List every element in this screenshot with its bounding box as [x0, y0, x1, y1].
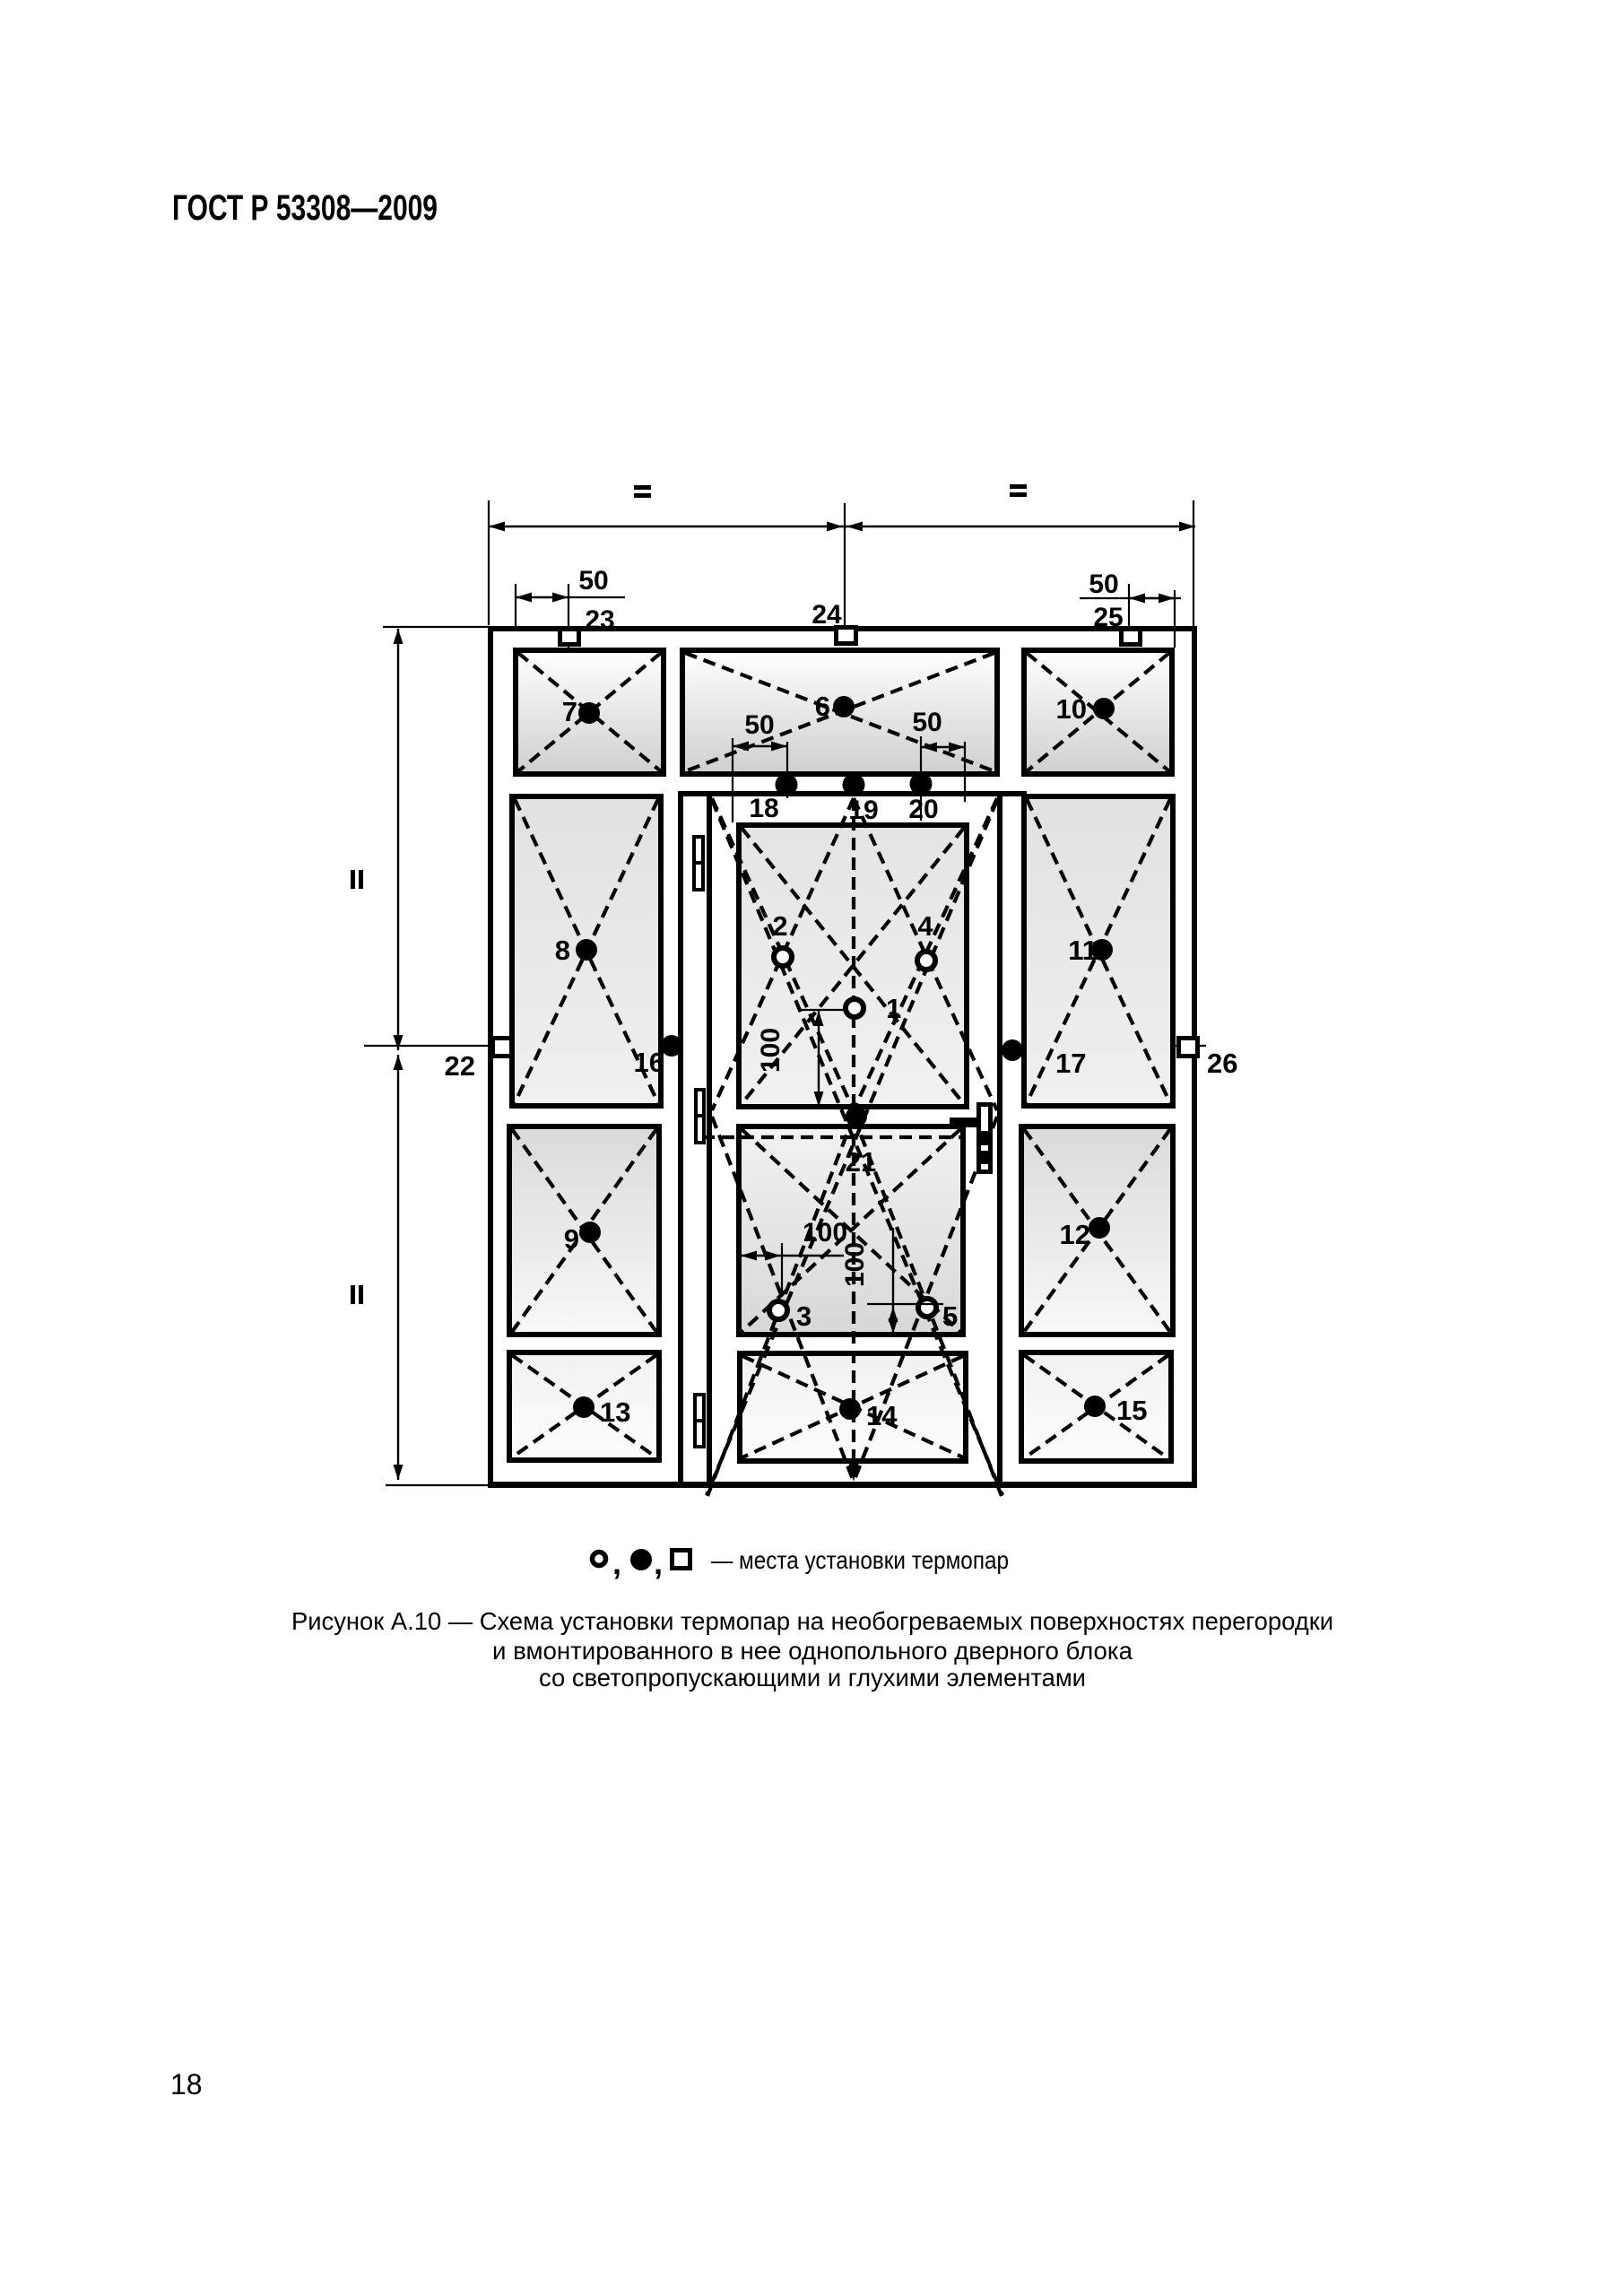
svg-text:17: 17	[1055, 1048, 1086, 1079]
svg-text:со светопропускающими и глухим: со светопропускающими и глухими элемента…	[539, 1664, 1086, 1692]
svg-text:— места установки термопар: — места установки термопар	[711, 1546, 1009, 1574]
svg-text:20: 20	[908, 795, 938, 824]
svg-text:18: 18	[170, 2068, 203, 2100]
svg-text:3: 3	[796, 1300, 811, 1332]
svg-text:Рисунок А.10 — Схема установки: Рисунок А.10 — Схема установки термопар …	[291, 1607, 1333, 1635]
svg-text:10: 10	[1056, 693, 1087, 725]
svg-text:15: 15	[1116, 1395, 1147, 1426]
svg-text:22: 22	[445, 1050, 475, 1082]
svg-text:,: ,	[654, 1544, 663, 1581]
svg-text:100: 100	[840, 1242, 870, 1287]
svg-text:26: 26	[1207, 1048, 1237, 1079]
svg-text:14: 14	[866, 1400, 898, 1431]
svg-text:50: 50	[578, 566, 608, 596]
svg-text:18: 18	[749, 794, 778, 823]
svg-text:12: 12	[1060, 1219, 1090, 1250]
svg-text:50: 50	[744, 710, 774, 740]
svg-text:4: 4	[917, 910, 933, 942]
svg-text:8: 8	[555, 935, 570, 966]
svg-text:50: 50	[912, 708, 942, 737]
svg-text:7: 7	[562, 696, 577, 727]
svg-text:13: 13	[600, 1396, 630, 1428]
svg-text:9: 9	[564, 1223, 579, 1255]
svg-text:2: 2	[772, 910, 787, 942]
svg-text:19: 19	[848, 796, 878, 825]
svg-text:5: 5	[942, 1300, 958, 1332]
svg-text:ГОСТ Р 53308—2009: ГОСТ Р 53308—2009	[172, 188, 438, 228]
svg-text:100: 100	[756, 1028, 785, 1073]
svg-text:21: 21	[846, 1146, 876, 1178]
svg-text:и вмонтированного в нее однопо: и вмонтированного в нее однопольного две…	[492, 1637, 1133, 1665]
svg-text:,: ,	[612, 1544, 621, 1581]
svg-text:50: 50	[1089, 570, 1118, 599]
svg-text:16: 16	[634, 1047, 664, 1078]
svg-text:1: 1	[886, 993, 901, 1024]
svg-text:6: 6	[815, 691, 830, 722]
svg-text:11: 11	[1068, 935, 1098, 966]
